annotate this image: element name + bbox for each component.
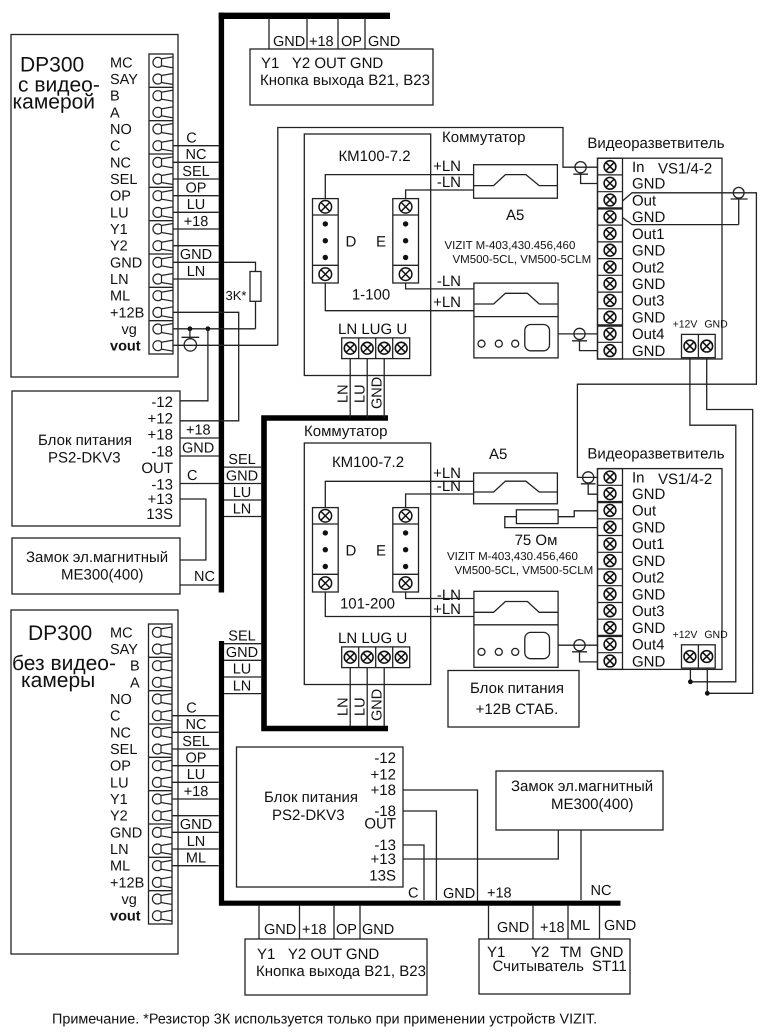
svg-text:NC: NC <box>110 155 131 171</box>
svg-text:Out4: Out4 <box>632 326 665 343</box>
svg-text:E: E <box>376 233 386 250</box>
svg-text:Примечание. *Резистор 3К испол: Примечание. *Резистор 3К используется то… <box>52 1012 597 1028</box>
svg-text:LU: LU <box>187 767 206 783</box>
svg-text:GND: GND <box>370 689 386 721</box>
svg-text:камерой: камерой <box>13 91 96 114</box>
svg-text:GND: GND <box>110 825 142 841</box>
svg-text:GND: GND <box>497 920 529 936</box>
svg-text:PS2-DKV3: PS2-DKV3 <box>272 807 345 824</box>
svg-text:NO: NO <box>110 692 132 708</box>
svg-text:NO: NO <box>110 122 132 138</box>
svg-text:SAY: SAY <box>110 642 138 658</box>
svg-text:+12V: +12V <box>673 318 698 330</box>
svg-text:GND: GND <box>632 620 666 637</box>
svg-text:C: C <box>110 139 120 155</box>
svg-text:+12V: +12V <box>673 629 698 641</box>
svg-text:SEL: SEL <box>228 629 255 645</box>
svg-text:C: C <box>408 886 418 902</box>
svg-text:+18: +18 <box>302 922 327 938</box>
svg-text:+13: +13 <box>371 851 396 868</box>
svg-text:+LN: +LN <box>433 294 461 311</box>
svg-text:75 Ом: 75 Ом <box>515 532 558 549</box>
svg-text:SEL: SEL <box>110 172 137 188</box>
svg-text:А5: А5 <box>489 446 507 463</box>
svg-text:Out1: Out1 <box>632 536 665 553</box>
svg-text:LN: LN <box>233 502 252 518</box>
svg-text:C: C <box>186 701 196 717</box>
svg-text:+18: +18 <box>184 784 209 800</box>
svg-text:GND: GND <box>604 918 636 934</box>
svg-text:Out: Out <box>632 192 657 209</box>
svg-text:+LN: +LN <box>433 158 461 175</box>
svg-text:VS1/4-2: VS1/4-2 <box>658 161 712 178</box>
svg-text:-12: -12 <box>374 750 396 767</box>
svg-text:LN: LN <box>233 678 252 694</box>
svg-text:-18: -18 <box>151 444 173 461</box>
svg-text:SEL: SEL <box>182 164 209 180</box>
svg-text:+18: +18 <box>371 782 396 799</box>
svg-text:Y1: Y1 <box>110 222 128 238</box>
svg-text:Коммутатор: Коммутатор <box>442 129 525 146</box>
svg-text:SEL: SEL <box>110 742 137 758</box>
svg-text:-LN: -LN <box>437 478 461 495</box>
svg-text:+12B: +12B <box>110 875 144 891</box>
svg-text:OUT: OUT <box>364 816 396 833</box>
svg-text:Out3: Out3 <box>632 603 665 620</box>
svg-text:камеры: камеры <box>21 669 95 692</box>
svg-text:Видеоразветвитель: Видеоразветвитель <box>587 446 724 463</box>
svg-text:1-100: 1-100 <box>352 287 390 304</box>
svg-text:GND: GND <box>180 247 212 263</box>
svg-text:-LN: -LN <box>437 273 461 290</box>
svg-text:GND: GND <box>632 310 666 327</box>
svg-text:In: In <box>632 469 645 486</box>
svg-text:PS2-DKV3: PS2-DKV3 <box>48 450 121 467</box>
svg-text:LN: LN <box>336 697 352 716</box>
svg-text:NC: NC <box>186 717 207 733</box>
svg-text:GND: GND <box>632 586 666 603</box>
svg-text:LN: LN <box>336 384 352 403</box>
svg-text:Замок эл.магнитный: Замок эл.магнитный <box>26 549 168 566</box>
svg-text:Замок эл.магнитный: Замок эл.магнитный <box>511 778 653 795</box>
svg-text:+12B: +12B <box>110 305 144 321</box>
svg-text:C: C <box>186 131 196 147</box>
svg-text:13S: 13S <box>369 868 396 885</box>
svg-text:GND: GND <box>264 922 296 938</box>
svg-text:LN: LN <box>110 272 129 288</box>
svg-text:GND: GND <box>632 653 666 670</box>
svg-text:OP: OP <box>186 181 207 197</box>
svg-text:GND: GND <box>180 817 212 833</box>
svg-text:SAY: SAY <box>110 72 138 88</box>
svg-text:ST11: ST11 <box>592 958 627 975</box>
svg-text:OP: OP <box>110 759 131 775</box>
svg-text:vg: vg <box>122 322 137 338</box>
svg-text:Out2: Out2 <box>632 259 665 276</box>
svg-text:Out4: Out4 <box>632 637 665 654</box>
svg-text:Y1: Y1 <box>110 792 128 808</box>
svg-text:+18: +18 <box>186 423 211 439</box>
svg-text:GND: GND <box>182 441 214 457</box>
svg-text:In: In <box>632 159 645 176</box>
svg-text:LN: LN <box>187 264 206 280</box>
svg-text:Кнопка выхода В21, В23: Кнопка выхода В21, В23 <box>256 963 426 980</box>
svg-text:МЕ300(400): МЕ300(400) <box>61 567 144 584</box>
svg-text:13S: 13S <box>146 506 173 523</box>
svg-text:VIZIT М-403,430.456,460: VIZIT М-403,430.456,460 <box>445 240 576 252</box>
svg-text:MC: MC <box>110 55 133 71</box>
svg-text:GND: GND <box>632 176 666 193</box>
svg-text:VIZIT М-403,430.456,460: VIZIT М-403,430.456,460 <box>447 551 578 563</box>
svg-text:+18: +18 <box>487 886 512 902</box>
svg-text:NC: NC <box>186 147 207 163</box>
svg-text:+18: +18 <box>184 214 209 230</box>
svg-text:OP: OP <box>110 189 131 205</box>
svg-text:ML: ML <box>110 289 130 305</box>
svg-text:Y2: Y2 <box>110 809 128 825</box>
svg-text:+18: +18 <box>148 427 173 444</box>
svg-text:VS1/4-2: VS1/4-2 <box>658 471 712 488</box>
svg-text:DP300: DP300 <box>28 622 92 645</box>
svg-text:LU: LU <box>233 485 252 501</box>
svg-text:Y2: Y2 <box>110 239 128 255</box>
svg-text:3K*: 3K* <box>226 288 247 303</box>
svg-text:LN: LN <box>110 842 129 858</box>
svg-text:ML: ML <box>570 918 590 934</box>
svg-text:GND: GND <box>632 520 666 537</box>
svg-text:+12: +12 <box>371 767 396 784</box>
svg-text:E: E <box>376 542 386 559</box>
svg-text:ML: ML <box>110 859 130 875</box>
svg-text:GND: GND <box>632 486 666 503</box>
svg-text:vout: vout <box>110 909 141 925</box>
svg-text:Видеоразветвитель: Видеоразветвитель <box>587 135 724 152</box>
svg-text:D: D <box>346 233 357 250</box>
svg-text:Кнопка выхода В21, В23: Кнопка выхода В21, В23 <box>260 72 430 89</box>
svg-text:+18: +18 <box>540 920 565 936</box>
svg-text:GND: GND <box>632 553 666 570</box>
svg-text:OUT: OUT <box>141 460 173 477</box>
svg-text:GND: GND <box>632 209 666 226</box>
svg-text:Блок питания: Блок питания <box>264 789 358 806</box>
svg-text:VM500-5CL, VM500-5CLM: VM500-5CL, VM500-5CLM <box>455 565 594 577</box>
svg-text:NC: NC <box>194 569 215 585</box>
svg-text:GND: GND <box>370 377 386 409</box>
svg-text:GND: GND <box>110 255 142 271</box>
svg-text:МЕ300(400): МЕ300(400) <box>551 796 634 813</box>
svg-text:D: D <box>346 542 357 559</box>
svg-text:А5: А5 <box>506 207 524 224</box>
svg-text:-12: -12 <box>151 394 173 411</box>
svg-text:GND: GND <box>273 34 305 50</box>
svg-text:OP: OP <box>186 751 207 767</box>
svg-text:SEL: SEL <box>228 452 255 468</box>
svg-text:GND: GND <box>368 34 400 50</box>
svg-text:LU: LU <box>110 775 129 791</box>
svg-text:Out: Out <box>632 503 657 520</box>
svg-text:GND: GND <box>704 629 728 641</box>
svg-text:GND: GND <box>632 343 666 360</box>
svg-text:+12: +12 <box>148 411 173 428</box>
svg-text:Y1 Y2 OUT GND: Y1 Y2 OUT GND <box>257 946 379 963</box>
svg-text:Out3: Out3 <box>632 293 665 310</box>
svg-text:+18: +18 <box>309 34 334 50</box>
svg-text:vout: vout <box>110 339 141 355</box>
svg-text:MC: MC <box>110 625 133 641</box>
svg-text:B: B <box>130 659 140 675</box>
svg-text:C: C <box>110 709 120 725</box>
svg-text:Out1: Out1 <box>632 226 665 243</box>
svg-text:Y1 Y2 OUT GND: Y1 Y2 OUT GND <box>261 55 383 72</box>
svg-text:101-200: 101-200 <box>340 596 395 613</box>
svg-text:LU: LU <box>353 384 369 403</box>
svg-text:КМ100-7.2: КМ100-7.2 <box>338 148 410 165</box>
svg-text:OP: OP <box>341 34 362 50</box>
svg-text:GND: GND <box>704 318 728 330</box>
svg-text:LN: LN <box>187 834 206 850</box>
svg-text:NC: NC <box>110 725 131 741</box>
svg-text:VM500-5CL, VM500-5CLM: VM500-5CL, VM500-5CLM <box>453 254 592 266</box>
svg-text:Блок питания: Блок питания <box>470 680 564 697</box>
svg-text:LU: LU <box>353 697 369 716</box>
svg-text:-LN: -LN <box>437 174 461 191</box>
svg-text:LU: LU <box>233 662 252 678</box>
svg-text:GND: GND <box>443 886 475 902</box>
svg-text:Блок питания: Блок питания <box>38 432 132 449</box>
svg-text:vg: vg <box>122 892 137 908</box>
svg-text:NC: NC <box>591 883 612 899</box>
svg-text:GND: GND <box>632 276 666 293</box>
svg-text:GND: GND <box>362 922 394 938</box>
svg-text:GND: GND <box>632 243 666 260</box>
svg-text:C: C <box>187 468 197 484</box>
svg-text:LN LUG U: LN LUG U <box>338 630 407 647</box>
svg-text:КМ100-7.2: КМ100-7.2 <box>332 454 404 471</box>
svg-text:Out2: Out2 <box>632 570 665 587</box>
svg-text:Считыватель: Считыватель <box>493 958 585 975</box>
svg-text:LN LUG U: LN LUG U <box>338 321 407 338</box>
svg-text:OP: OP <box>336 922 357 938</box>
svg-text:Коммутатор: Коммутатор <box>304 423 387 440</box>
svg-text:+12В СТАБ.: +12В СТАБ. <box>476 701 559 718</box>
svg-text:LU: LU <box>187 197 206 213</box>
svg-text:LU: LU <box>110 205 129 221</box>
svg-text:GND: GND <box>226 469 258 485</box>
svg-text:A: A <box>110 105 120 121</box>
svg-text:+LN: +LN <box>433 601 461 618</box>
svg-text:SEL: SEL <box>182 734 209 750</box>
svg-text:ML: ML <box>186 851 206 867</box>
svg-text:A: A <box>130 675 140 691</box>
svg-text:B: B <box>110 89 120 105</box>
svg-text:GND: GND <box>226 645 258 661</box>
